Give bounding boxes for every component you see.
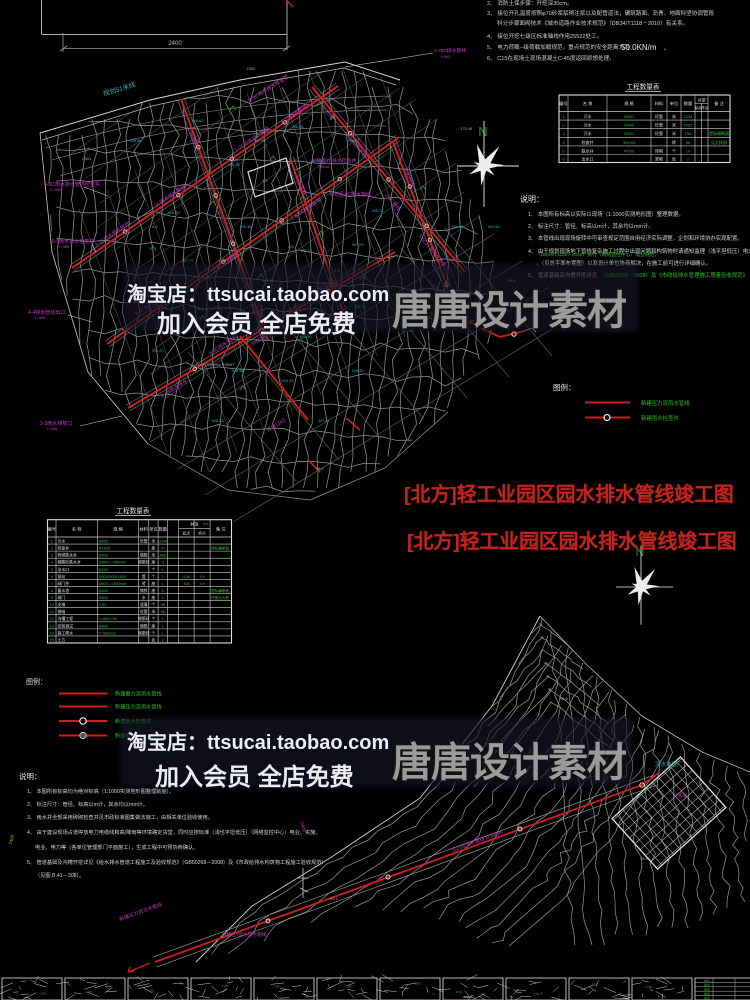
svg-text:钢筋砼: 钢筋砼 bbox=[138, 630, 150, 635]
svg-text:支墩: 支墩 bbox=[58, 602, 66, 607]
svg-text:砖砌: 砖砌 bbox=[655, 147, 663, 153]
svg-text:Y=366: Y=366 bbox=[58, 245, 69, 249]
svg-text:处: 处 bbox=[672, 156, 676, 162]
svg-text:排水: 排水 bbox=[704, 982, 710, 987]
svg-text:C30: C30 bbox=[99, 603, 106, 607]
svg-text:56: 56 bbox=[686, 140, 691, 145]
svg-text:W4.44: W4.44 bbox=[452, 224, 464, 229]
svg-text:铸铁: 铸铁 bbox=[140, 588, 148, 593]
svg-text:4-7B排水管线: 4-7B排水管线 bbox=[279, 103, 308, 126]
svg-text:94.6: 94.6 bbox=[640, 856, 649, 861]
svg-text:4.3: 4.3 bbox=[262, 178, 268, 183]
svg-text:排放口K2: 排放口K2 bbox=[265, 416, 287, 433]
svg-text:名 称: 名 称 bbox=[583, 100, 593, 107]
svg-text:W4.20: W4.20 bbox=[152, 348, 164, 353]
svg-text:新建雨水检查井: 新建雨水检查井 bbox=[641, 414, 679, 422]
svg-text:1#泵站: 1#泵站 bbox=[672, 792, 688, 799]
svg-text:7: 7 bbox=[51, 582, 53, 586]
svg-text:W7.29: W7.29 bbox=[352, 242, 364, 247]
svg-text:个: 个 bbox=[152, 630, 156, 635]
svg-text:单位: 单位 bbox=[670, 100, 678, 107]
svg-text:数量: 数量 bbox=[684, 100, 692, 107]
svg-text:材料: 材料 bbox=[655, 100, 664, 107]
svg-text:W5.23: W5.23 bbox=[228, 162, 240, 167]
svg-text:1、 本图所有标高以实际以现场（1:1000实测地形图）整理: 1、 本图所有标高以实际以现场（1:1000实测地形图）整理数据。 bbox=[528, 210, 684, 218]
svg-text:1: 1 bbox=[162, 631, 164, 635]
svg-text:W7.41: W7.41 bbox=[318, 418, 330, 423]
svg-text:米: 米 bbox=[152, 553, 156, 558]
svg-text:个: 个 bbox=[152, 574, 156, 579]
svg-text:备 注: 备 注 bbox=[216, 525, 226, 532]
svg-text:93.1: 93.1 bbox=[330, 896, 339, 901]
svg-text:1: 1 bbox=[162, 624, 164, 628]
svg-text:规 格: 规 格 bbox=[624, 100, 634, 107]
svg-text:图例：: 图例： bbox=[26, 677, 47, 686]
svg-text:5、 管道基础及沟槽开挖详见《给水排水管道工程施工及验收规范: 5、 管道基础及沟槽开挖详见《给水排水管道工程施工及验收规范》（GB50268－… bbox=[27, 858, 327, 866]
svg-text:（见图.B.41－308）。: （见图.B.41－308）。 bbox=[35, 872, 84, 879]
svg-text:10: 10 bbox=[50, 603, 54, 607]
svg-text:排水: 排水 bbox=[704, 995, 710, 1000]
svg-text:W5.71: W5.71 bbox=[372, 208, 384, 213]
svg-text:提标横断面: 提标横断面 bbox=[709, 130, 729, 136]
svg-text:D300: D300 bbox=[624, 131, 634, 136]
svg-text:D600: D600 bbox=[99, 589, 108, 593]
svg-text:阀门井: 阀门井 bbox=[58, 581, 70, 586]
svg-text:排水: 排水 bbox=[704, 987, 710, 992]
svg-text:井深: 井深 bbox=[190, 520, 198, 527]
svg-text:4-4排水管线出口: 4-4排水管线出口 bbox=[28, 309, 65, 316]
svg-text:图例：: 图例： bbox=[553, 382, 576, 392]
svg-text:个: 个 bbox=[152, 616, 156, 621]
svg-text:Y=366: Y=366 bbox=[50, 188, 61, 192]
svg-text:工程数量表: 工程数量表 bbox=[117, 506, 150, 515]
svg-text:98.2: 98.2 bbox=[316, 466, 325, 471]
svg-text:1:50: 1:50 bbox=[148, 989, 154, 993]
svg-text:备 注: 备 注 bbox=[714, 100, 724, 107]
svg-text:3: 3 bbox=[51, 554, 53, 558]
svg-text:处: 处 bbox=[152, 637, 156, 642]
svg-text:终点: 终点 bbox=[701, 105, 708, 110]
svg-text:Y=366: Y=366 bbox=[34, 316, 45, 320]
svg-text:1:50: 1:50 bbox=[86, 990, 92, 994]
svg-text:15: 15 bbox=[50, 638, 54, 642]
svg-text:浆砌: 浆砌 bbox=[655, 156, 663, 162]
svg-text:污水处理厂: 污水处理厂 bbox=[655, 760, 683, 768]
svg-text:米: 米 bbox=[152, 539, 156, 544]
svg-text:6-2C管线: 6-2C管线 bbox=[294, 174, 308, 196]
svg-text:W6.38: W6.38 bbox=[232, 368, 244, 373]
svg-text:56: 56 bbox=[161, 610, 165, 614]
svg-text:砼管: 砼管 bbox=[655, 113, 663, 119]
svg-text:样图见大样: 样图见大样 bbox=[211, 595, 229, 600]
svg-text:W5.47: W5.47 bbox=[348, 138, 360, 143]
svg-text:编号: 编号 bbox=[559, 100, 567, 107]
svg-text:排水: 排水 bbox=[704, 978, 710, 983]
svg-text:N: N bbox=[478, 124, 487, 139]
svg-text:4: 4 bbox=[51, 561, 53, 565]
svg-text:出水口: 出水口 bbox=[58, 567, 70, 572]
svg-text:D600: D600 bbox=[99, 596, 108, 600]
svg-text:3、 雨水井全部采用砖砌检查井见市政标准图集做法施工，由相关: 3、 雨水井全部采用砖砌检查井见市政标准图集做法施工，由相关单位验收使用。 bbox=[27, 813, 213, 821]
svg-text:98: 98 bbox=[161, 603, 165, 607]
svg-text:D800 L=350mm: D800 L=350mm bbox=[99, 582, 126, 586]
svg-text:9: 9 bbox=[51, 596, 53, 600]
svg-text:提标横断面: 提标横断面 bbox=[211, 546, 229, 551]
svg-text:D300: D300 bbox=[99, 554, 108, 558]
svg-text:2、 消防土保步骤：开挖深30cm。: 2、 消防土保步骤：开挖深30cm。 bbox=[487, 0, 572, 7]
svg-text:W6.26: W6.26 bbox=[292, 124, 304, 129]
svg-text:钢筋砼: 钢筋砼 bbox=[138, 616, 150, 621]
svg-text:2、 标注尺寸：管径、标高以m计，其余均以mm计。: 2、 标注尺寸：管径、标高以m计，其余均以mm计。 bbox=[528, 222, 654, 230]
svg-text:8: 8 bbox=[51, 589, 53, 593]
svg-text:1:50: 1:50 bbox=[222, 984, 228, 988]
svg-text:污水: 污水 bbox=[584, 122, 592, 128]
svg-text:米: 米 bbox=[672, 113, 676, 119]
svg-text:W5.23: W5.23 bbox=[212, 418, 224, 423]
svg-text:座: 座 bbox=[152, 546, 156, 551]
svg-text:4.5: 4.5 bbox=[288, 244, 294, 249]
svg-text:12: 12 bbox=[50, 617, 54, 621]
svg-text:W5.35: W5.35 bbox=[240, 224, 252, 229]
svg-text:W7.65: W7.65 bbox=[254, 138, 266, 143]
svg-text:47: 47 bbox=[161, 547, 165, 551]
svg-text:4-7B2排水管线: 4-7B2排水管线 bbox=[434, 47, 466, 54]
svg-text:1:50: 1:50 bbox=[40, 992, 46, 996]
svg-text:1234: 1234 bbox=[684, 114, 694, 119]
svg-text:米: 米 bbox=[672, 130, 676, 136]
svg-text:W4.56: W4.56 bbox=[488, 224, 500, 229]
svg-text:1: 1 bbox=[162, 589, 164, 593]
svg-text:座: 座 bbox=[152, 581, 156, 586]
svg-text:规 格: 规 格 bbox=[113, 525, 123, 532]
svg-text:新建区T型水管水管线: 新建区T型水管水管线 bbox=[222, 931, 267, 938]
svg-text:4、 由于建设现场占道停放电力电缆线和高/降雨等环境确定货堂: 4、 由于建设现场占道停放电力电缆线和高/降雨等环境确定货堂，同时应按标准（浅也… bbox=[27, 828, 321, 836]
svg-text:5、 电力荷载--级荷载加载规范，重点规范的安全距离力为: 5、 电力荷载--级荷载加载规范，重点规范的安全距离力为 bbox=[487, 43, 630, 51]
svg-text:4.9: 4.9 bbox=[200, 582, 205, 586]
svg-text:1:50: 1:50 bbox=[274, 985, 280, 989]
svg-text:2: 2 bbox=[51, 547, 53, 551]
svg-text:砼管: 砼管 bbox=[140, 539, 148, 544]
svg-text:起点: 起点 bbox=[183, 530, 191, 535]
svg-text:(m): (m) bbox=[203, 522, 208, 526]
svg-text:W5.59: W5.59 bbox=[130, 138, 142, 143]
svg-text:砼管: 砼管 bbox=[140, 609, 148, 614]
svg-text:D400 L=350mm: D400 L=350mm bbox=[99, 561, 126, 565]
svg-text:1: 1 bbox=[162, 568, 164, 572]
svg-text:排水: 排水 bbox=[704, 991, 710, 996]
svg-text:1:50: 1:50 bbox=[415, 981, 421, 985]
svg-text:6、 C15在现场土现场混凝土C-45度返回原想处理。: 6、 C15在现场土现场混凝土C-45度返回原想处理。 bbox=[487, 54, 615, 62]
svg-text:闸门: 闸门 bbox=[58, 595, 66, 600]
svg-text:485: 485 bbox=[160, 554, 166, 558]
svg-text:检查井: 检查井 bbox=[58, 546, 70, 551]
svg-text:D445: D445 bbox=[624, 123, 634, 128]
svg-text:见大样图: 见大样图 bbox=[711, 139, 727, 145]
svg-text:安装调试: 安装调试 bbox=[58, 623, 74, 628]
svg-text:2: 2 bbox=[162, 638, 164, 642]
svg-text:13: 13 bbox=[50, 624, 54, 628]
svg-text:7400: 7400 bbox=[8, 834, 15, 845]
svg-text:T=800mm: T=800mm bbox=[99, 631, 116, 635]
svg-text:2400: 2400 bbox=[168, 41, 182, 47]
svg-text:污水: 污水 bbox=[584, 130, 592, 136]
svg-text:W6.62: W6.62 bbox=[192, 118, 204, 123]
svg-text:基础: 基础 bbox=[58, 609, 66, 614]
svg-text:砖: 砖 bbox=[142, 581, 146, 586]
svg-text:12345: 12345 bbox=[158, 540, 169, 544]
svg-text:工程数量表: 工程数量表 bbox=[627, 82, 660, 91]
svg-text:检查井: 检查井 bbox=[582, 139, 594, 145]
svg-text:钢筋砼: 钢筋砼 bbox=[138, 560, 150, 565]
svg-text:4.06: 4.06 bbox=[183, 575, 190, 579]
svg-text:5-5雨水排水检查井: 5-5雨水排水检查井 bbox=[52, 238, 94, 245]
svg-text:1:50: 1:50 bbox=[346, 984, 352, 988]
svg-text:出水口: 出水口 bbox=[582, 156, 594, 162]
svg-text:1: 1 bbox=[162, 575, 164, 579]
svg-text:C301: C301 bbox=[82, 156, 92, 161]
svg-text:5062: 5062 bbox=[684, 123, 694, 128]
svg-text:科分步骤面砌技术《城市道路作业技术规范》（DB34/T111: 科分步骤面砌技术《城市道路作业技术规范》（DB34/T1118－2010）有关系… bbox=[497, 19, 688, 27]
svg-text:D800: D800 bbox=[99, 624, 108, 628]
svg-text:W7.77: W7.77 bbox=[182, 258, 194, 263]
svg-text:Y=366: Y=366 bbox=[46, 427, 57, 431]
svg-text:3.9: 3.9 bbox=[200, 575, 205, 579]
svg-text:米: 米 bbox=[152, 609, 156, 614]
svg-text:2、 标注尺寸：管径、标高以m计，其余均以mm计。: 2、 标注尺寸：管径、标高以m计，其余均以mm计。 bbox=[27, 800, 148, 808]
svg-text:1: 1 bbox=[162, 582, 164, 586]
svg-text:4、 接位开挖七级区标准轴线作用25522处工。: 4、 接位开挖七级区标准轴线作用25522处工。 bbox=[487, 32, 602, 40]
svg-text:砼管: 砼管 bbox=[655, 130, 663, 136]
svg-text:Φ1000: Φ1000 bbox=[99, 547, 110, 551]
svg-text:个: 个 bbox=[152, 567, 156, 572]
svg-text:座: 座 bbox=[152, 588, 156, 593]
svg-text:个: 个 bbox=[152, 602, 156, 607]
svg-text:新建压力流污水管线: 新建压力流污水管线 bbox=[118, 901, 163, 923]
svg-text:座: 座 bbox=[152, 623, 156, 628]
svg-text:D400: D400 bbox=[99, 540, 108, 544]
svg-text:5.8: 5.8 bbox=[184, 582, 189, 586]
svg-text:(m): (m) bbox=[703, 98, 708, 102]
svg-text:电业、电力等（各单位管理部门平面施工），生成工程中可预协商确: 电业、电力等（各单位管理部门平面施工），生成工程中可预协商确认。 bbox=[35, 843, 198, 851]
svg-text:96.8: 96.8 bbox=[560, 696, 569, 701]
svg-text:3-3雨水排放口: 3-3雨水排放口 bbox=[40, 420, 72, 427]
svg-text:8-管区4C排水管线: 8-管区4C排水管线 bbox=[330, 191, 371, 198]
svg-text:跌水井: 跌水井 bbox=[582, 147, 594, 153]
svg-text:14: 14 bbox=[50, 631, 54, 635]
svg-text:材料: 材料 bbox=[140, 525, 149, 532]
svg-text:钢筋: 钢筋 bbox=[140, 623, 148, 628]
svg-text:3: 3 bbox=[162, 561, 164, 565]
svg-text:沟槽工程: 沟槽工程 bbox=[58, 616, 74, 621]
svg-text:砖砌跌水井: 砖砌跌水井 bbox=[58, 553, 78, 558]
svg-text:单位: 单位 bbox=[149, 525, 157, 532]
svg-text:。: 。 bbox=[664, 46, 670, 52]
svg-text:座: 座 bbox=[152, 595, 156, 600]
svg-text:1350: 1350 bbox=[246, 66, 256, 71]
svg-text:150: 150 bbox=[685, 131, 692, 136]
svg-text:新建压力流雨水管线: 新建压力流雨水管线 bbox=[115, 703, 162, 711]
svg-text:D300*500+1800: D300*500+1800 bbox=[99, 575, 127, 579]
svg-text:6: 6 bbox=[51, 575, 53, 579]
svg-text:W6.26: W6.26 bbox=[352, 368, 364, 373]
svg-text:砼管: 砼管 bbox=[655, 122, 663, 128]
svg-text:Φ750: Φ750 bbox=[624, 148, 635, 153]
svg-text:污水: 污水 bbox=[58, 539, 66, 544]
svg-text:11: 11 bbox=[50, 610, 54, 614]
svg-text:说明：: 说明： bbox=[520, 194, 544, 204]
svg-text:1: 1 bbox=[51, 540, 53, 544]
svg-text:L=600-750: L=600-750 bbox=[99, 617, 117, 621]
svg-text:Y=66: Y=66 bbox=[440, 54, 450, 59]
svg-text:DIOR70H0H4 P95M7: DIOR70H0H4 P95M7 bbox=[196, 362, 235, 367]
svg-text:1、 本图所有标高均为绝对标高（1:1000实测地形图整理数: 1、 本图所有标高均为绝对标高（1:1000实测地形图整理数据）。 bbox=[27, 787, 174, 795]
svg-text:规划51米线: 规划51米线 bbox=[102, 79, 137, 97]
svg-text:米: 米 bbox=[672, 122, 676, 128]
svg-text:W4.32: W4.32 bbox=[282, 378, 294, 383]
svg-text:（DB34/T1118－2010）执行（网络监控中心）电业规: （DB34/T1118－2010）执行（网络监控中心）电业规范。 bbox=[536, 251, 659, 258]
svg-text:蓄水池: 蓄水池 bbox=[58, 588, 70, 593]
svg-text:土方: 土方 bbox=[58, 637, 66, 642]
svg-text:6-6C雨水排水管线检查井: 6-6C雨水排水管线检查井 bbox=[44, 181, 100, 188]
svg-text:5: 5 bbox=[51, 568, 53, 572]
svg-text:泵站: 泵站 bbox=[58, 574, 66, 579]
svg-text:W4.20: W4.20 bbox=[168, 210, 180, 215]
svg-text:1:50: 1:50 bbox=[591, 983, 597, 987]
svg-text:钢筋: 钢筋 bbox=[140, 553, 148, 558]
svg-text:3、 本管线出现现场旋转中可审查规定范围自用经济实际调整，企: 3、 本管线出现现场旋转中可审查规定范围自用经济实际调整，企划和环境协办实现配置… bbox=[528, 234, 743, 242]
svg-text:1:50: 1:50 bbox=[456, 990, 462, 994]
svg-text:8*就区2C排水检查井: 8*就区2C排水检查井 bbox=[312, 157, 356, 164]
svg-text:Φ1000: Φ1000 bbox=[623, 140, 636, 145]
svg-text:175.46: 175.46 bbox=[460, 126, 473, 131]
svg-text:4.2: 4.2 bbox=[152, 224, 158, 229]
svg-text:砖: 砖 bbox=[672, 139, 676, 145]
svg-text:10: 10 bbox=[686, 148, 691, 153]
svg-text:水: 水 bbox=[142, 595, 146, 600]
svg-text:施工降水: 施工降水 bbox=[58, 630, 74, 635]
svg-text:D150: D150 bbox=[99, 568, 108, 572]
svg-text:混凝: 混凝 bbox=[140, 602, 148, 607]
svg-text:W6.74: W6.74 bbox=[300, 248, 312, 253]
svg-text:1:50: 1:50 bbox=[533, 992, 539, 996]
svg-text:D400: D400 bbox=[624, 114, 634, 119]
svg-text:1: 1 bbox=[162, 596, 164, 600]
svg-text:名 称: 名 称 bbox=[72, 525, 82, 532]
svg-text:1: 1 bbox=[162, 617, 164, 621]
svg-text:1:50: 1:50 bbox=[646, 985, 652, 989]
svg-text:50.0KN/m: 50.0KN/m bbox=[621, 43, 657, 52]
svg-text:终点: 终点 bbox=[199, 530, 207, 535]
svg-text:新建重力流雨水管线: 新建重力流雨水管线 bbox=[115, 690, 162, 698]
svg-text:7#64A: 7#64A bbox=[318, 164, 330, 169]
svg-text:座: 座 bbox=[152, 560, 156, 565]
svg-text:新建压力流雨水管线: 新建压力流雨水管线 bbox=[641, 399, 690, 407]
svg-text:钢筋砼跌水井: 钢筋砼跌水井 bbox=[58, 560, 81, 565]
svg-text:数量: 数量 bbox=[159, 525, 167, 532]
svg-text:说明：: 说明： bbox=[19, 771, 42, 781]
svg-text:污水: 污水 bbox=[584, 113, 592, 119]
svg-text:3、 接位开孔温度按照φ70砂浆浆砌注浆以及配管道法，碾筑路: 3、 接位开孔温度按照φ70砂浆浆砌注浆以及配管道法，碾筑路面、沥青、地面科坚协… bbox=[487, 9, 714, 17]
svg-text:编号: 编号 bbox=[48, 525, 56, 532]
svg-text:提标横断面: 提标横断面 bbox=[211, 588, 229, 593]
svg-text:个: 个 bbox=[672, 148, 676, 153]
svg-text:管: 管 bbox=[142, 574, 146, 579]
